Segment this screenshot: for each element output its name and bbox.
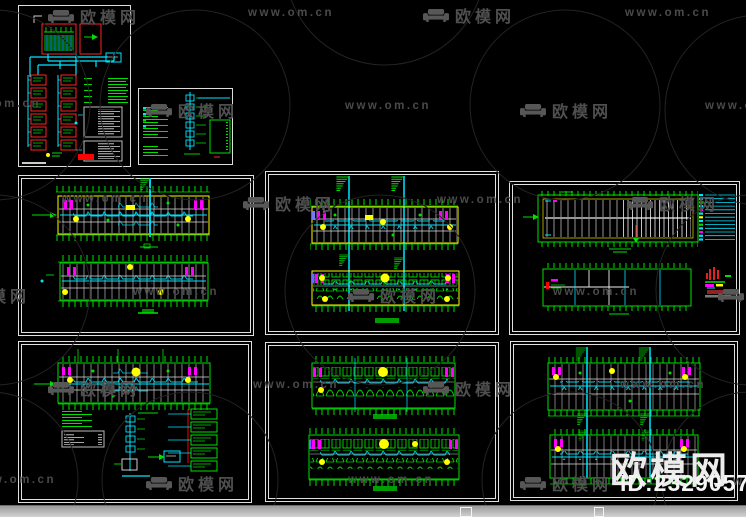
roof-plan-sheet: [510, 182, 740, 335]
cad-preview-canvas: 欧模网 www.om.cn 欧模网 www.om.cn www.om.cn 欧模…: [0, 0, 746, 517]
red-title-bar: [78, 154, 94, 160]
window-edge-box: [460, 507, 472, 517]
window-edge-box: [594, 507, 604, 517]
legend-notes-panel: [139, 89, 233, 165]
plan-upper: [523, 191, 698, 252]
notes-green: [62, 411, 102, 428]
bottom-window-edge: [0, 505, 746, 517]
floor-plan-sheet-4: [266, 343, 499, 502]
floor-plan-sheet-1: [19, 176, 254, 336]
floor-plan-sheet-2: [266, 172, 499, 335]
system-diagram-panel: [19, 6, 131, 167]
plan-lower: [550, 429, 698, 484]
cad-drawing-layer: [0, 0, 746, 517]
plan-upper: [548, 357, 700, 416]
floor-plan-sheet-3: [19, 342, 252, 503]
floor-plan-sheet-5: [511, 342, 738, 501]
